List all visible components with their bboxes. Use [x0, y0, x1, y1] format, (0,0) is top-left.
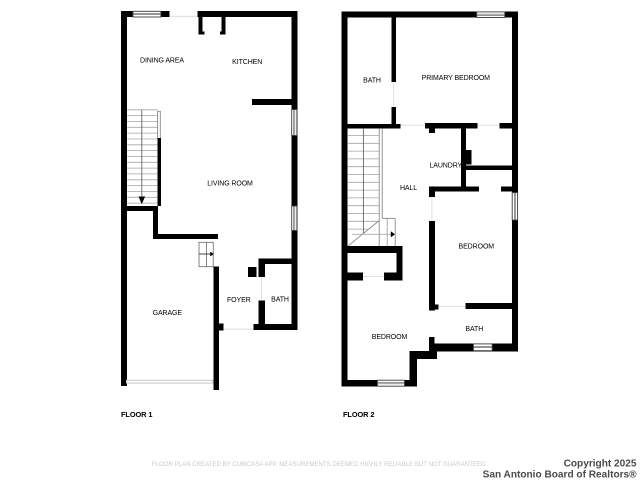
svg-text:Copyright 2025: Copyright 2025: [564, 458, 637, 469]
svg-text:San Antonio Board of Realtors®: San Antonio Board of Realtors®: [483, 469, 638, 480]
svg-text:GARAGE: GARAGE: [153, 310, 183, 317]
svg-text:FLOOR 1: FLOOR 1: [121, 410, 152, 419]
svg-text:LIVING ROOM: LIVING ROOM: [207, 181, 253, 188]
svg-text:LAUNDRY: LAUNDRY: [429, 163, 462, 170]
svg-text:FLOOR 2: FLOOR 2: [343, 410, 374, 419]
svg-text:BATH: BATH: [271, 296, 289, 303]
svg-text:HALL: HALL: [400, 185, 417, 192]
svg-text:FLOOR PLAN CREATED BY CUBICASA: FLOOR PLAN CREATED BY CUBICASA APP. MEAS…: [152, 461, 487, 468]
svg-text:BEDROOM: BEDROOM: [459, 243, 495, 250]
svg-text:KITCHEN: KITCHEN: [232, 59, 262, 66]
svg-text:BATH: BATH: [465, 326, 483, 333]
svg-text:DINING AREA: DINING AREA: [140, 57, 184, 64]
svg-text:BATH: BATH: [363, 77, 381, 84]
svg-text:BEDROOM: BEDROOM: [372, 334, 408, 341]
svg-text:PRIMARY BEDROOM: PRIMARY BEDROOM: [422, 75, 491, 82]
svg-text:FOYER: FOYER: [227, 297, 251, 304]
